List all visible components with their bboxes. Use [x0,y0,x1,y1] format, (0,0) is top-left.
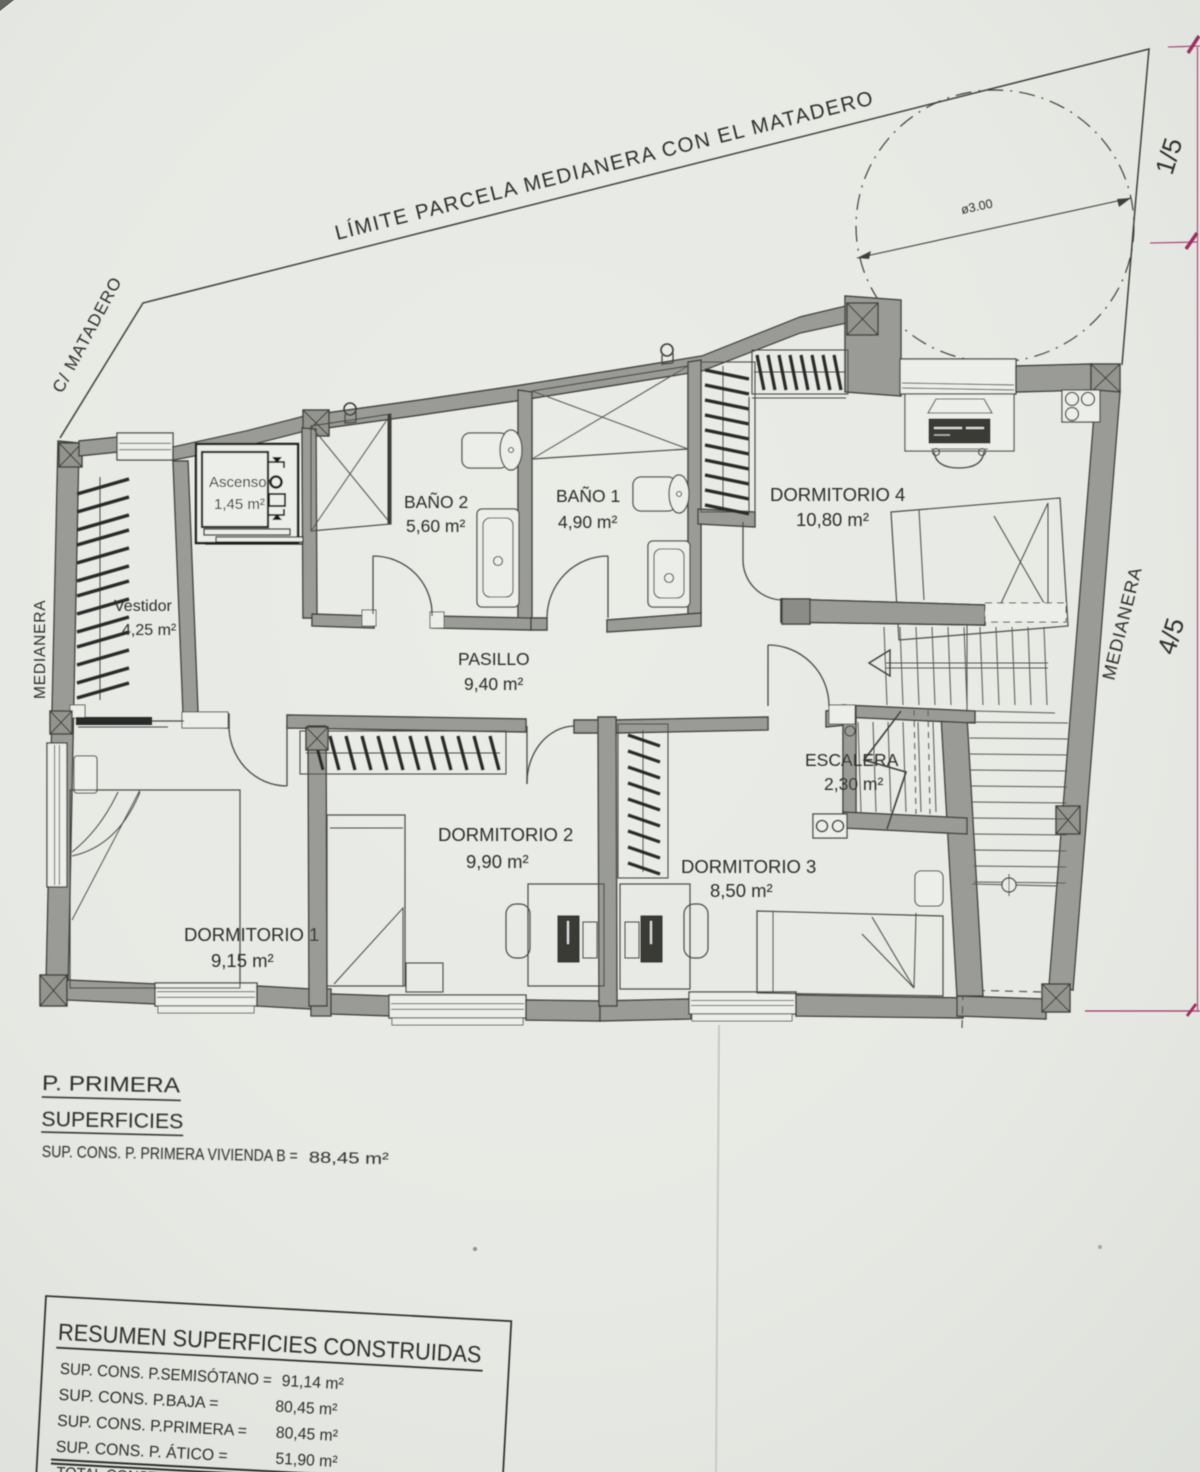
svg-text:80,45 m²: 80,45 m² [275,1424,338,1445]
svg-text:4,25 m²: 4,25 m² [122,622,177,639]
svg-text:DORMITORIO 3: DORMITORIO 3 [681,856,816,877]
svg-text:10,80 m²: 10,80 m² [796,509,869,530]
svg-text:BAÑO 2: BAÑO 2 [404,491,468,512]
svg-text:9,15 m²: 9,15 m² [211,950,274,971]
svg-text:5,60 m²: 5,60 m² [406,516,465,536]
svg-text:P. PRIMERA: P. PRIMERA [42,1071,181,1097]
svg-text:1,45 m²: 1,45 m² [214,496,265,513]
svg-text:MEDIANERA: MEDIANERA [32,600,49,699]
svg-text:DORMITORIO 4: DORMITORIO 4 [770,484,905,505]
svg-text:Ascensor: Ascensor [209,474,272,491]
svg-text:2,30 m²: 2,30 m² [824,774,883,794]
svg-text:DORMITORIO 1: DORMITORIO 1 [184,924,319,945]
svg-text:Vestidor: Vestidor [114,598,172,615]
svg-text:BAÑO 1: BAÑO 1 [556,485,620,506]
svg-text:4,90 m²: 4,90 m² [558,512,617,532]
svg-text:DORMITORIO 2: DORMITORIO 2 [438,824,573,845]
svg-text:9,40 m²: 9,40 m² [464,674,523,694]
svg-text:88,45 m²: 88,45 m² [309,1150,390,1168]
svg-text:51,90 m²: 51,90 m² [275,1450,338,1471]
svg-text:PASILLO: PASILLO [458,649,530,669]
svg-text:ESCALERA: ESCALERA [805,750,899,770]
svg-text:80,45 m²: 80,45 m² [275,1398,338,1419]
svg-text:9,90 m²: 9,90 m² [466,851,529,872]
svg-text:SUPERFICIES: SUPERFICIES [41,1107,183,1133]
svg-text:91,14 m²: 91,14 m² [281,1372,344,1393]
svg-text:8,50 m²: 8,50 m² [710,880,773,901]
